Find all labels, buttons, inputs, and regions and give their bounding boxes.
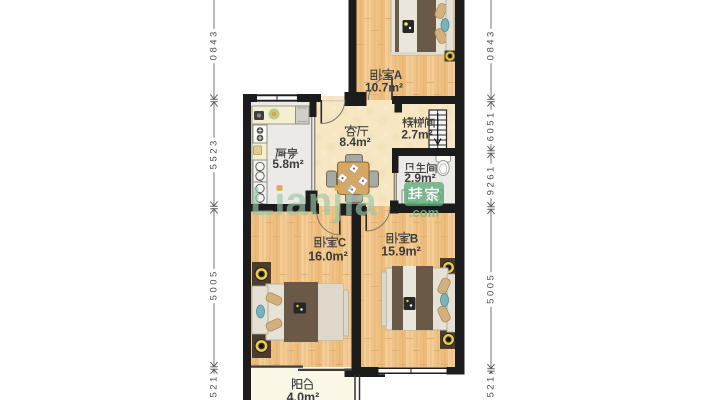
svg-text:5: 5 bbox=[486, 275, 497, 280]
svg-text:1: 1 bbox=[486, 113, 497, 118]
svg-text:1: 1 bbox=[209, 377, 220, 382]
svg-text:5: 5 bbox=[486, 392, 497, 397]
svg-text:4.0m²: 4.0m² bbox=[287, 391, 320, 400]
svg-text:8.4m²: 8.4m² bbox=[339, 135, 370, 149]
svg-text:4: 4 bbox=[209, 39, 220, 44]
svg-text:8: 8 bbox=[486, 47, 497, 52]
svg-text:2: 2 bbox=[209, 384, 220, 389]
svg-text:6: 6 bbox=[486, 174, 497, 179]
svg-text:Lianjia: Lianjia bbox=[250, 180, 377, 224]
svg-text:.com: .com bbox=[409, 205, 439, 220]
svg-text:5: 5 bbox=[209, 272, 220, 277]
svg-text:5: 5 bbox=[486, 120, 497, 125]
svg-text:0: 0 bbox=[209, 55, 220, 60]
svg-text:16.0m²: 16.0m² bbox=[308, 250, 348, 264]
svg-text:5: 5 bbox=[209, 392, 220, 397]
svg-text:9: 9 bbox=[486, 190, 497, 195]
svg-text:5: 5 bbox=[209, 164, 220, 169]
svg-text:5: 5 bbox=[209, 295, 220, 300]
svg-text:0: 0 bbox=[486, 55, 497, 60]
svg-text:2: 2 bbox=[209, 148, 220, 153]
svg-text:C: C bbox=[338, 238, 346, 250]
svg-text:6: 6 bbox=[486, 136, 497, 141]
svg-text:4: 4 bbox=[486, 39, 497, 44]
svg-text:3: 3 bbox=[486, 32, 497, 37]
svg-text:1: 1 bbox=[486, 377, 497, 382]
svg-text:5.8m²: 5.8m² bbox=[272, 157, 303, 171]
svg-text:2: 2 bbox=[486, 182, 497, 187]
svg-text:2: 2 bbox=[486, 384, 497, 389]
svg-text:8: 8 bbox=[209, 47, 220, 52]
svg-text:2.7m²: 2.7m² bbox=[401, 128, 432, 142]
svg-text:1: 1 bbox=[486, 167, 497, 172]
svg-text:0: 0 bbox=[209, 287, 220, 292]
svg-text:3: 3 bbox=[209, 141, 220, 146]
svg-text:5: 5 bbox=[486, 299, 497, 304]
svg-text:5: 5 bbox=[209, 156, 220, 161]
svg-text:0: 0 bbox=[486, 291, 497, 296]
svg-text:10.7m²: 10.7m² bbox=[365, 81, 403, 95]
svg-text:3: 3 bbox=[209, 32, 220, 37]
svg-text:0: 0 bbox=[209, 279, 220, 284]
svg-text:0: 0 bbox=[486, 283, 497, 288]
svg-text:15.9m²: 15.9m² bbox=[381, 245, 421, 259]
svg-text:0: 0 bbox=[486, 128, 497, 133]
